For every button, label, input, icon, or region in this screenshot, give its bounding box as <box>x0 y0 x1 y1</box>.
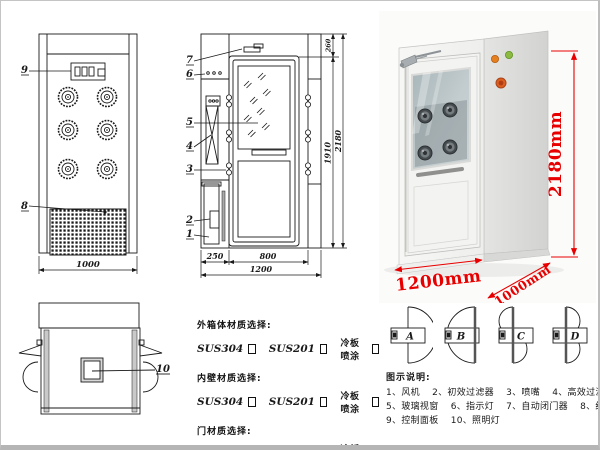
callout-1: 1 <box>186 229 193 240</box>
door-config-label: A <box>405 332 414 343</box>
legend-item: 2、初效过滤器 <box>432 388 494 398</box>
side-nozzle-icon <box>305 95 310 107</box>
dim-800: 800 <box>260 251 277 261</box>
side-nozzle-icon <box>226 95 231 107</box>
side-nozzle-icon <box>305 163 310 175</box>
control-panel <box>71 63 105 80</box>
door-glass <box>238 66 290 149</box>
checkbox-icon[interactable] <box>320 397 327 407</box>
legend-item: 6、指示灯 <box>451 402 494 412</box>
front-elevation-drawing: 9 8 1000 <box>19 13 184 285</box>
legend-line-2: 5、玻璃视窗 6、指示灯 7、自动闭门器 8、红外线感应器 <box>386 400 596 414</box>
callout-8: 8 <box>21 201 28 212</box>
door-config-label: D <box>570 332 580 343</box>
indicator-light-orange <box>491 55 498 62</box>
door-config-c: C <box>494 304 541 366</box>
material-group-outer-box: 外箱体材质选择: SUS304 SUS201 冷板喷涂 <box>197 318 379 362</box>
checkbox-icon[interactable] <box>248 397 255 407</box>
door-config-b: B <box>440 304 487 366</box>
nozzle-icon <box>59 160 78 179</box>
option-cold-plate: 冷板喷涂 <box>340 389 366 415</box>
dim-260: 260 <box>325 38 333 53</box>
legend-item: 1、风机 <box>386 388 420 398</box>
callout-6: 6 <box>186 69 193 80</box>
door-config-a: A <box>386 304 433 366</box>
option-sus304: SUS304 <box>197 343 243 355</box>
callout-3: 3 <box>186 164 193 175</box>
legend-item: 4、高效过滤器 <box>552 388 600 398</box>
dim-250: 250 <box>206 251 224 261</box>
product-photo: 2180mm 1200mm 1000mm <box>379 11 596 303</box>
top-view-drawing: 10 <box>16 294 191 446</box>
callout-9: 9 <box>21 65 28 76</box>
option-sus304: SUS304 <box>197 396 243 408</box>
indicator-light-green <box>505 51 512 58</box>
legend-line-3: 9、控制面板 10、照明灯 <box>386 414 596 428</box>
material-group-title: 外箱体材质选择: <box>197 318 379 331</box>
nozzle-icon <box>59 121 78 140</box>
option-sus201: SUS201 <box>269 396 315 408</box>
dim-2180: 2180 <box>333 129 343 153</box>
door-config-legend: A B C <box>386 304 596 428</box>
option-sus201: SUS201 <box>269 343 315 355</box>
door-frame <box>229 56 299 246</box>
side-nozzle-icon <box>226 163 231 175</box>
door-config-row: A B C <box>386 304 596 366</box>
callout-2: 2 <box>185 215 193 226</box>
dim-1200: 1200 <box>250 264 273 274</box>
callout-4: 4 <box>186 141 193 152</box>
photo-dim-height: 2180mm <box>546 111 566 197</box>
legend-item: 9、控制面板 <box>386 416 439 426</box>
right-hinge-wing <box>140 345 162 356</box>
option-cold-plate: 冷板喷涂 <box>340 336 366 362</box>
legend-item: 3、喷嘴 <box>506 388 540 398</box>
nozzle-icon <box>59 88 78 107</box>
door-config-label: B <box>456 332 465 343</box>
callout-10: 10 <box>156 364 170 375</box>
dim-1910: 1910 <box>323 141 333 164</box>
checkbox-icon[interactable] <box>372 397 379 407</box>
nozzle-icon <box>98 88 117 107</box>
checkbox-icon[interactable] <box>372 344 379 354</box>
material-group-title: 内壁材质选择: <box>197 371 379 384</box>
return-air-grille <box>50 209 126 255</box>
door-config-label: C <box>517 332 525 343</box>
nozzle-icon <box>98 121 117 140</box>
callout-5: 5 <box>186 117 193 128</box>
checkbox-icon[interactable] <box>320 344 327 354</box>
nozzle-icon <box>98 160 117 179</box>
legend-title: 图示说明: <box>386 370 596 383</box>
cabinet-side-face <box>484 31 548 254</box>
legend-item: 8、红外线感应器 <box>580 402 600 412</box>
legend-line-1: 1、风机 2、初效过滤器 3、喷嘴 4、高效过滤器 <box>386 386 596 400</box>
dim-width-1000: 1000 <box>76 260 100 270</box>
left-handle-arc <box>23 362 38 392</box>
option-cold-plate: 冷板喷涂 <box>340 442 366 450</box>
checkbox-icon[interactable] <box>248 344 255 354</box>
side-nozzle-icon <box>226 130 231 142</box>
left-hinge-wing <box>19 345 41 356</box>
callout-7: 7 <box>186 55 193 66</box>
legend-item: 7、自动闭门器 <box>506 402 568 412</box>
side-section-drawing: 7 6 5 4 3 2 1 250 800 1200 260 1910 <box>184 13 364 305</box>
door-config-d: D <box>548 304 595 366</box>
door-handle <box>252 150 286 155</box>
legend-item: 5、玻璃视窗 <box>386 402 439 412</box>
material-group-inner-wall: 内壁材质选择: SUS304 SUS201 冷板喷涂 <box>197 371 379 415</box>
material-selection-form: 外箱体材质选择: SUS304 SUS201 冷板喷涂 内壁材质选择: SUS3… <box>197 318 379 450</box>
fan-column <box>204 184 219 244</box>
material-group-title: 门材质选择: <box>197 424 379 437</box>
material-group-door: 门材质选择: SUS304 SUS201 冷板喷涂 <box>197 424 379 450</box>
side-nozzle-icon <box>305 130 310 142</box>
legend-item: 10、照明灯 <box>451 416 500 426</box>
air-shower-spec-sheet: 9 8 1000 <box>0 0 600 450</box>
